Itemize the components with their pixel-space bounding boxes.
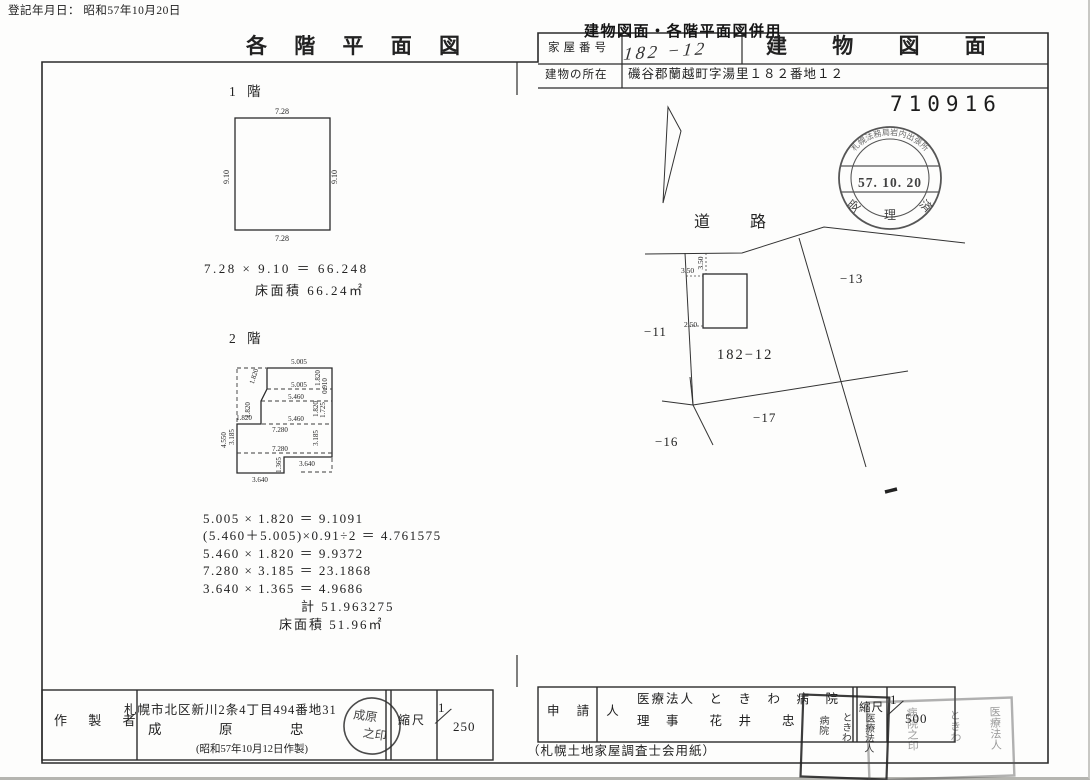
survey-marker-triangle xyxy=(663,107,681,203)
stamp-date: 57. 10. 20 xyxy=(858,175,922,190)
seal-column: 病院 xyxy=(816,714,829,736)
dim-label: 5.460 xyxy=(288,393,304,401)
road-label: 道路 xyxy=(694,214,806,232)
maker-made-date: (昭和57年10月12日作製) xyxy=(196,744,308,756)
seal-column: ときわ xyxy=(839,712,852,743)
floor2-label: 2 階 xyxy=(229,331,265,347)
header-grid xyxy=(517,33,1048,687)
floor2-calc-block: 5.005 × 1.820 ＝ 9.1091 (5.460＋5.005)×0.9… xyxy=(203,512,442,599)
floor1-outline xyxy=(235,118,330,230)
dim-label: 7.28 xyxy=(275,234,289,243)
maker-scale-value: 1 ∕ 250 xyxy=(436,700,486,744)
dim-label: 0.910 xyxy=(321,378,329,394)
lot-label-16: −16 xyxy=(655,435,678,450)
floor2-area: 床面積 51.96㎡ xyxy=(279,618,384,633)
dim-label: 7.280 xyxy=(272,426,288,434)
dim-label: 1.820 xyxy=(244,402,252,418)
maker-name: 成 原 忠 xyxy=(148,722,326,738)
dim-label: 1.725 xyxy=(319,402,327,418)
seal-column: 医療法人 xyxy=(988,706,1002,750)
main-lot-label: 182−12 xyxy=(717,347,773,364)
dim-label: 9.10 xyxy=(222,170,231,184)
dim-label: 7.280 xyxy=(272,445,288,453)
stamp-char: 受 xyxy=(845,197,863,215)
scale-denominator: 500 xyxy=(905,711,928,727)
floor1-calc: 7.28 × 9.10 ＝ 66.248 xyxy=(204,262,369,277)
dim-label: 3.640 xyxy=(252,476,268,484)
floor2-calc-line: 5.460 × 1.820 ＝ 9.9372 xyxy=(203,547,442,564)
dim-label: 5.005 xyxy=(291,358,307,366)
dim-label: 1.820 xyxy=(248,367,261,385)
seal-char: 之印 xyxy=(362,726,388,743)
ink-mark xyxy=(885,489,897,492)
dim-label: 5.460 xyxy=(288,415,304,423)
dim-label: 5.005 xyxy=(291,381,307,389)
maker-seal: 成原 之印 xyxy=(340,694,403,757)
floor1-dim-labels: 7.28 7.28 9.10 9.10 xyxy=(222,107,339,243)
lot-label-17: −17 xyxy=(753,411,776,426)
floor1-label: 1 階 xyxy=(229,84,265,100)
applicant-label: 申 請 人 xyxy=(547,704,626,718)
floor2-calc-line: (5.460＋5.005)×0.91÷2 ＝ 4.761575 xyxy=(203,529,442,546)
applicant-name-line1: 医療法人 と き わ 病 院 xyxy=(637,692,840,706)
dim-label: 1.365 xyxy=(275,457,283,473)
building-location-label: 建物の所在 xyxy=(545,69,608,82)
stamp-arc-text: 札幌法務局岩内出張所 xyxy=(849,127,931,153)
drawing-layer: 7.28 7.28 9.10 9.10 5.005 5.005 5.460 5.… xyxy=(0,0,1090,780)
dim-label: 3.640 xyxy=(299,460,315,468)
svg-text:札幌法務局岩内出張所: 札幌法務局岩内出張所 xyxy=(849,127,931,153)
applicant-name-line2: 理 事 花 井 忠 xyxy=(637,714,797,728)
dim-label: 4.550 xyxy=(220,432,228,448)
dim-label: 7.28 xyxy=(275,107,289,116)
dim-label: 3.50 xyxy=(696,256,705,269)
floor1-area: 床面積 66.24㎡ xyxy=(255,284,365,299)
registration-date: 登記年月日： 昭和57年10月20日 xyxy=(8,5,181,18)
dim-label: 3.185 xyxy=(228,429,236,445)
lot-label-11: −11 xyxy=(644,325,667,340)
floor2-calc-line: 7.280 × 3.185 ＝ 23.1868 xyxy=(203,564,442,581)
dim-label: 2.50 xyxy=(684,320,697,329)
scale-denominator: 250 xyxy=(453,719,476,735)
site-offset-labels: 3.50 3.50 2.50 xyxy=(681,256,705,329)
floor-plan-title: 各 階 平 面 図 xyxy=(246,34,471,58)
building-drawing-title: 建 物 図 面 xyxy=(766,34,1006,58)
receipt-stamp: 札幌法務局岩内出張所 57. 10. 20 受 理 済 xyxy=(839,127,941,229)
lot-label-13: −13 xyxy=(840,272,863,287)
seal-char: 成原 xyxy=(352,707,378,724)
scanned-document-page: 7.28 7.28 9.10 9.10 5.005 5.005 5.460 5.… xyxy=(0,0,1090,780)
maker-scale-label: 縮尺 xyxy=(398,714,426,728)
floor2-total: 計 51.963275 xyxy=(301,600,395,615)
dim-label: 3.185 xyxy=(312,430,320,446)
building-location-value: 磯谷郡蘭越町字湯里１８２番地１２ xyxy=(628,67,844,81)
seal-column: ときわ xyxy=(948,709,962,743)
floor2-calc-line: 5.005 × 1.820 ＝ 9.1091 xyxy=(203,512,442,529)
serial-number: 710916 xyxy=(890,92,1002,116)
maker-address: 札幌市北区新川2条4丁目494番地31 xyxy=(124,703,337,717)
site-building-footprint xyxy=(703,274,747,328)
dim-label: 9.10 xyxy=(330,170,339,184)
combined-use-stamp-text: 建物図面・各階平面図併用 xyxy=(584,24,782,41)
paper-note: （札幌土地家屋調査士会用紙） xyxy=(527,744,716,758)
outer-border xyxy=(42,33,1048,763)
house-number-label: 家屋番号 xyxy=(548,42,610,55)
floor2-calc-line: 3.640 × 1.365 ＝ 4.9686 xyxy=(203,582,442,599)
stamp-char: 理 xyxy=(884,208,896,222)
stamp-char: 済 xyxy=(917,196,936,215)
site-plan-boundaries xyxy=(645,107,965,467)
applicant-scale-label: 縮尺 xyxy=(859,702,884,715)
dim-label: 3.50 xyxy=(681,266,694,275)
applicant-scale-value: 1 ∕ 500 xyxy=(888,692,938,736)
